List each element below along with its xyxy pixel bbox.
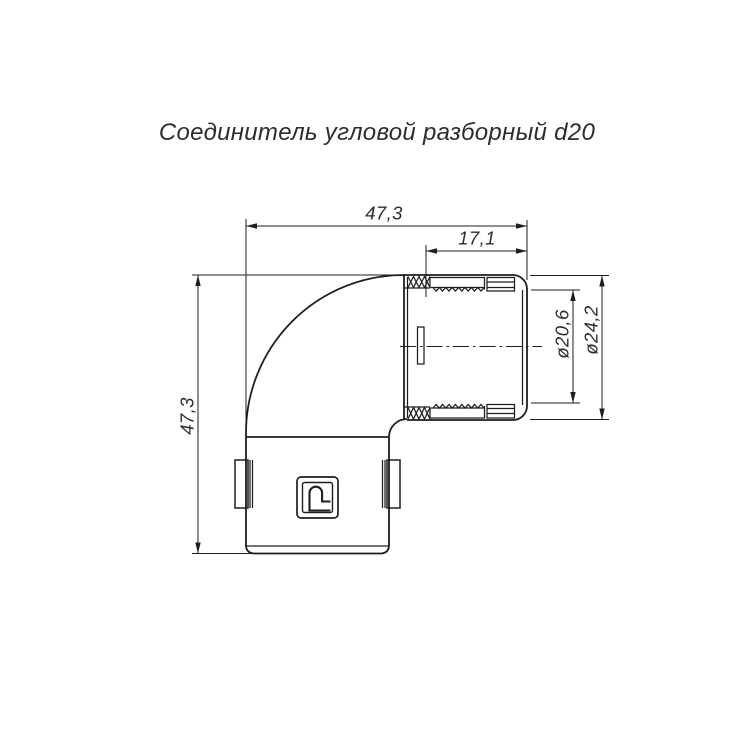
dimension-pipe-length: 17,1 <box>426 228 527 254</box>
logo-letter-glyph <box>310 487 331 511</box>
technical-drawing: Соединитель угловой разборный d20 47,3 1 <box>0 0 750 750</box>
dimension-total-height-label: 47,3 <box>177 397 198 435</box>
dimension-arrow-bottom <box>195 543 200 554</box>
dimension-inner-diameter: ø20,6 <box>552 290 576 403</box>
dimension-arrow-top <box>599 276 604 287</box>
release-tabs <box>235 460 400 508</box>
dimension-outer-diameter: ø24,2 <box>581 276 605 420</box>
dimension-pipe-length-label: 17,1 <box>458 228 496 249</box>
dimension-arrow-left <box>246 223 257 228</box>
dimension-arrow-right <box>516 248 527 253</box>
dimension-arrow-top <box>195 275 200 286</box>
pipe-outline <box>404 275 527 420</box>
elbow-outer-arc <box>246 275 404 433</box>
pipe-outer-contour <box>404 275 527 420</box>
dimension-arrow-top <box>570 290 575 301</box>
drawing-title: Соединитель угловой разборный d20 <box>159 119 596 146</box>
latch-block-bottom <box>487 405 515 419</box>
corrugation-hatch <box>408 408 430 420</box>
dimension-inner-diameter-label: ø20,6 <box>552 309 573 359</box>
dimension-total-width-label: 47,3 <box>365 203 403 224</box>
dimension-total-height: 47,3 <box>177 275 201 554</box>
elbow-body-outline <box>246 275 407 554</box>
dimension-arrow-right <box>516 223 527 228</box>
corrugation-hatch <box>408 277 430 288</box>
dimension-arrow-bottom <box>570 392 575 403</box>
serration-teeth <box>433 288 484 292</box>
clamp-band-top <box>404 277 515 292</box>
dimension-arrow-left <box>426 248 437 253</box>
serration-teeth <box>433 404 484 408</box>
dimension-total-width: 47,3 <box>246 203 527 229</box>
clamp-band-bottom <box>404 404 515 419</box>
pipe-inner-stop-rib <box>418 327 425 364</box>
dimension-arrow-bottom <box>599 409 604 420</box>
drawing-page: Соединитель угловой разборный d20 47,3 1 <box>0 0 750 750</box>
manufacturer-logo-icon <box>297 477 338 518</box>
dimension-outer-diameter-label: ø24,2 <box>581 305 602 355</box>
inner-corner-fillet <box>389 419 407 437</box>
latch-block-top <box>487 278 515 292</box>
